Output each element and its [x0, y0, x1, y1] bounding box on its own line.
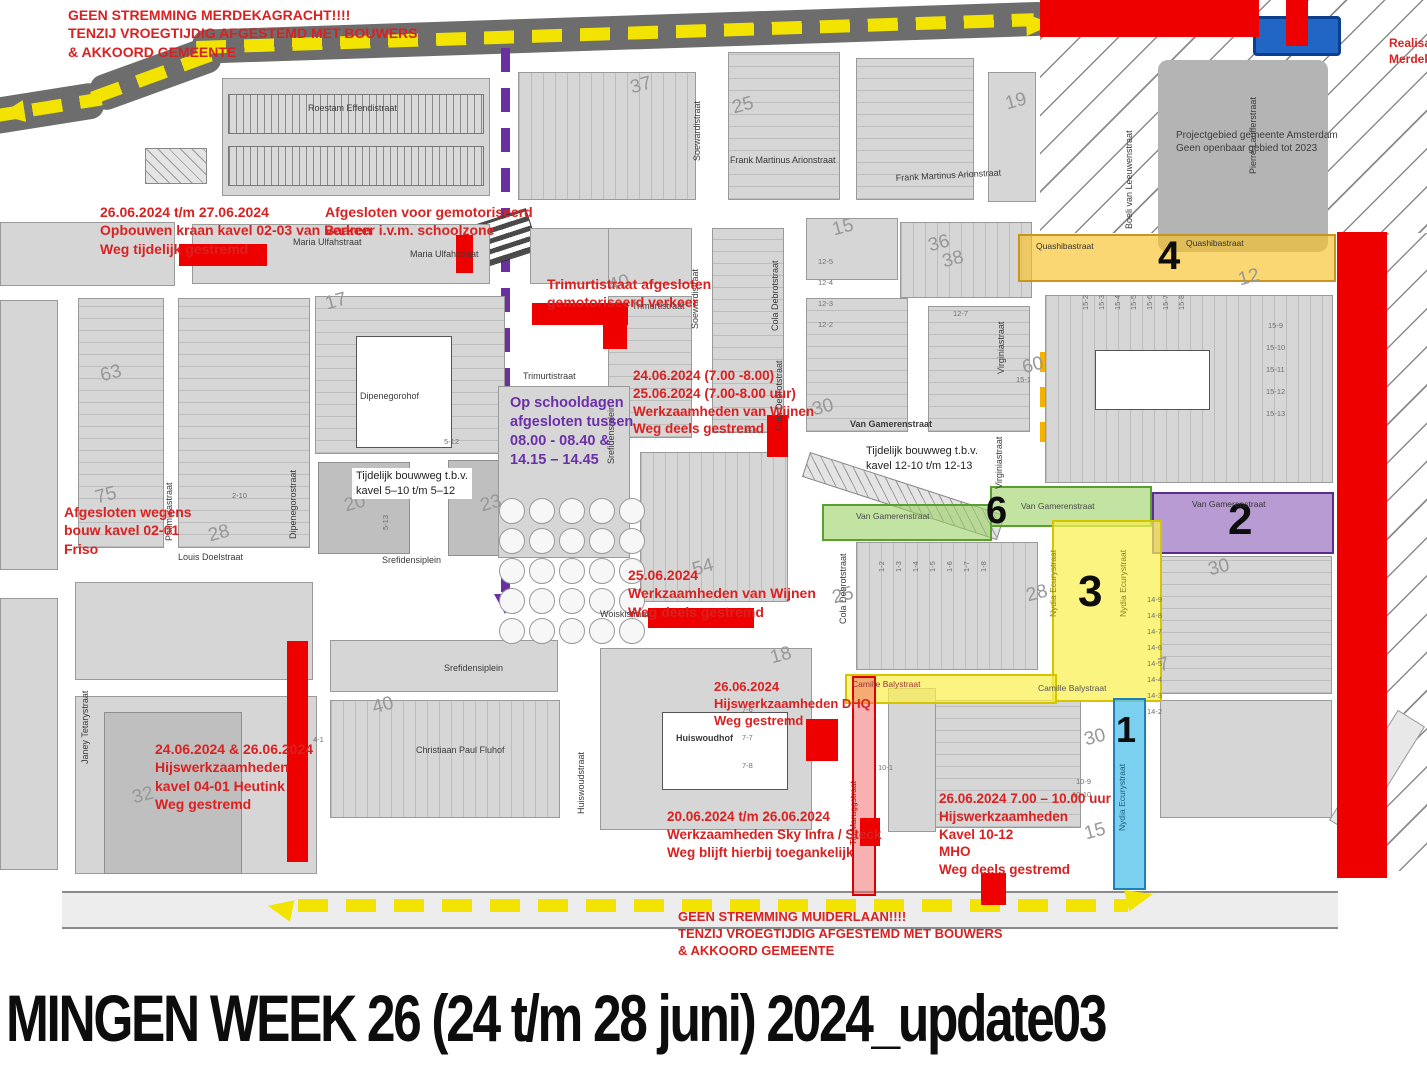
map-block	[0, 598, 58, 870]
note-afgesloten-friso: Afgesloten wegens bouw kavel 02-01 Friso	[64, 503, 192, 558]
unit-label: 1-4	[911, 561, 920, 572]
note-realisatie-merdekagracht: Realisatie t Merdekagr	[1389, 36, 1427, 68]
note-projectgebied: Projectgebied gemeente Amsterdam Geen op…	[1176, 129, 1338, 155]
unit-label: 15-4	[1113, 295, 1122, 310]
zone-street-label: Nydia Ecurystraat	[1048, 550, 1058, 617]
unit-label: 15-10	[1266, 343, 1285, 352]
tree-icon	[589, 498, 615, 524]
tree-icon	[619, 498, 645, 524]
unit-label: 15-9	[1268, 321, 1283, 330]
unit-label: 1-3	[894, 561, 903, 572]
plot-number: 30	[1082, 725, 1108, 752]
zone-4-quashibastraat-number: 4	[1158, 236, 1180, 276]
street-label: Virginiastraat	[994, 437, 1004, 489]
note-trimurtistraat-afgesloten: Trimurtistraat afgesloten gemotoriseerd …	[547, 275, 711, 312]
tree-icon	[499, 558, 525, 584]
tree-icon	[619, 618, 645, 644]
map-block	[1095, 350, 1210, 410]
note-hijswerkzaamheden-mho: 26.06.2024 7.00 – 10.00 uur Hijswerkzaam…	[939, 790, 1111, 879]
street-label: Srefidensiplein	[444, 663, 503, 673]
street-label: Virginiastraat	[996, 322, 1006, 374]
street-label: Roestam Effendistraat	[308, 103, 397, 113]
zone-street-label: Van Gamerenstraat	[856, 511, 930, 521]
tree-icon	[499, 588, 525, 614]
zone-3-nydia-ecurystraat	[1052, 520, 1162, 702]
street-label: Van Gamerenstraat	[850, 419, 932, 429]
unit-label: 12-4	[818, 278, 833, 287]
street-label: Dipenegorohof	[360, 391, 419, 401]
unit-label: 5-13	[381, 515, 390, 530]
unit-label: 1-6	[945, 561, 954, 572]
unit-label: 15-11	[1266, 365, 1285, 374]
zone-3-nydia-ecurystraat-number: 3	[1078, 570, 1102, 614]
map-block	[1160, 700, 1332, 818]
unit-label: 15-13	[1266, 409, 1285, 418]
street-label: Srefidensiplein	[382, 555, 441, 565]
tree-icon	[589, 558, 615, 584]
note-hijswerkzaamheden-dhq: 26.06.2024 Hijswerkzaamheden DHQ Weg ges…	[714, 678, 871, 729]
unit-label: 15-8	[1177, 295, 1186, 310]
tree-icon	[529, 528, 555, 554]
tree-icon	[559, 558, 585, 584]
map-block	[900, 222, 1032, 298]
map-block	[75, 582, 313, 680]
unit-label: 14-6	[1147, 643, 1162, 652]
street-label: Frank Martinus Arionstraat	[730, 155, 836, 165]
zone-street-label: Quashibastraat	[1186, 238, 1244, 248]
unit-label: 14-5	[1147, 659, 1162, 668]
note-werkzaamheden-sky-infra: 20.06.2024 t/m 26.06.2024 Werkzaamheden …	[667, 808, 881, 861]
tree-icon	[529, 498, 555, 524]
unit-label: 2-10	[232, 491, 247, 500]
street-label: Huiswoudhof	[676, 733, 733, 743]
tree-icon	[529, 618, 555, 644]
plot-number: 25	[830, 583, 856, 610]
zone-street-label: Nydia Ecurystraat	[1118, 550, 1128, 617]
note-hijswerkzaamheden-heutink: 24.06.2024 & 26.06.2024 Hijswerkzaamhede…	[155, 740, 313, 814]
plot-number: 28	[1024, 581, 1050, 608]
projectgebied-amsterdam-area	[1158, 60, 1328, 252]
zone-street-label: Camille Balystraat	[1038, 683, 1107, 693]
map-block	[518, 72, 696, 200]
tree-icon	[589, 618, 615, 644]
map-block	[228, 146, 484, 186]
unit-label: 15-6	[1145, 295, 1154, 310]
unit-label: 4-1	[313, 735, 324, 744]
unit-label: 14-4	[1147, 675, 1162, 684]
unit-label: 12-7	[953, 309, 968, 318]
map-block	[1160, 556, 1332, 694]
street-label: Huiswoudstraat	[576, 752, 586, 814]
unit-label: 14-2	[1147, 707, 1162, 716]
tree-icon	[559, 528, 585, 554]
closure-bar	[1040, 0, 1259, 37]
map-block	[928, 306, 1030, 432]
street-label: Trimurtistraat	[523, 371, 576, 381]
map-block	[888, 688, 936, 832]
unit-label: 10-1	[878, 763, 893, 772]
unit-label: 14-7	[1147, 627, 1162, 636]
note-werkzaamheden-wijnen-24-25: 24.06.2024 (7.00 -8.00) 25.06.2024 (7.00…	[633, 367, 814, 438]
tree-icon	[529, 588, 555, 614]
zone-1-nydia-ecurystraat-number: 1	[1116, 712, 1136, 748]
page-title: MINGEN WEEK 26 (24 t/m 28 juni) 2024_upd…	[6, 980, 1105, 1056]
tree-icon	[559, 588, 585, 614]
zone-street-label: Quashibastraat	[1036, 241, 1094, 251]
unit-label: 7-7	[742, 733, 753, 742]
unit-label: 14-9	[1147, 595, 1162, 604]
unit-label: 15-1	[1016, 375, 1031, 384]
zone-6-van-gamerenstraat-east-number: 6	[986, 492, 1007, 530]
street-label: Cola Debrotstraat	[770, 260, 780, 331]
stremmingen-site-map: Volgorde woonrijpmaken (1 t/m 6) MINGEN …	[0, 0, 1427, 1070]
map-block	[228, 94, 484, 134]
tree-icon	[619, 528, 645, 554]
unit-label: 15-7	[1161, 295, 1170, 310]
unit-label: 1-7	[962, 561, 971, 572]
note-bouwweg-kavel-12: Tijdelijk bouwweg t.b.v. kavel 12-10 t/m…	[866, 444, 978, 473]
closure-bar	[1337, 232, 1387, 878]
unit-label: 1-5	[928, 561, 937, 572]
unit-label: 1-8	[979, 561, 988, 572]
note-geen-stremming-merdekagracht: GEEN STREMMING MERDEKAGRACHT!!!! TENZIJ …	[68, 6, 418, 61]
note-geen-stremming-muiderlaan: GEEN STREMMING MUIDERLAAN!!!! TENZIJ VRO…	[678, 908, 1003, 959]
street-label: Maria Ulfahstraat	[410, 249, 479, 259]
unit-label: 15-5	[1129, 295, 1138, 310]
map-block	[0, 300, 58, 570]
street-label: Boeli van Leeuwenstraat	[1124, 130, 1134, 229]
zone-street-label: Van Gamerenstraat	[1192, 499, 1266, 509]
unit-label: 15-3	[1097, 295, 1106, 310]
map-block	[145, 148, 207, 184]
map-block	[330, 700, 560, 818]
note-op-schooldagen: Op schooldagen afgesloten tussen 08.00 -…	[510, 394, 633, 471]
note-schoolzone: Afgesloten voor gemotoriseerd verkeer i.…	[325, 203, 533, 240]
tree-icon	[529, 558, 555, 584]
unit-label: 12-2	[818, 320, 833, 329]
tree-icon	[559, 498, 585, 524]
dead-end-sign-red-bar	[1286, 0, 1308, 46]
zone-street-label: Van Gamerenstraat	[1021, 501, 1095, 511]
note-bouwweg-kavel-5: Tijdelijk bouwweg t.b.v. kavel 5–10 t/m …	[352, 468, 472, 499]
unit-label: 5-12	[444, 437, 459, 446]
unit-label: 15-12	[1266, 387, 1285, 396]
unit-label: 1-2	[877, 561, 886, 572]
note-werkzaamheden-wijnen-25: 25.06.2024 Werkzaamheden van Wijnen Weg …	[628, 566, 816, 621]
street-label: Soewardistraat	[692, 101, 702, 161]
unit-label: 12-5	[818, 257, 833, 266]
unit-label: 7-8	[742, 761, 753, 770]
tree-icon	[559, 618, 585, 644]
zone-street-label: Nydia Ecurystraat	[1117, 764, 1127, 831]
unit-label: 14-8	[1147, 611, 1162, 620]
zone-6-van-gamerenstraat-west	[822, 504, 992, 541]
unit-label: 10-9	[1076, 777, 1091, 786]
tree-icon	[499, 528, 525, 554]
street-label: Dipenegorostraat	[288, 470, 298, 539]
unit-label: 15-2	[1081, 295, 1090, 310]
tree-icon	[589, 528, 615, 554]
street-label: Christiaan Paul Fluhof	[416, 745, 505, 755]
unit-label: 14-3	[1147, 691, 1162, 700]
tree-icon	[499, 618, 525, 644]
map-block	[728, 52, 840, 200]
unit-label: 12-3	[818, 299, 833, 308]
yellow-route-top-arrow-west	[0, 100, 26, 126]
street-label: Janey Tetarystraat	[80, 691, 90, 764]
